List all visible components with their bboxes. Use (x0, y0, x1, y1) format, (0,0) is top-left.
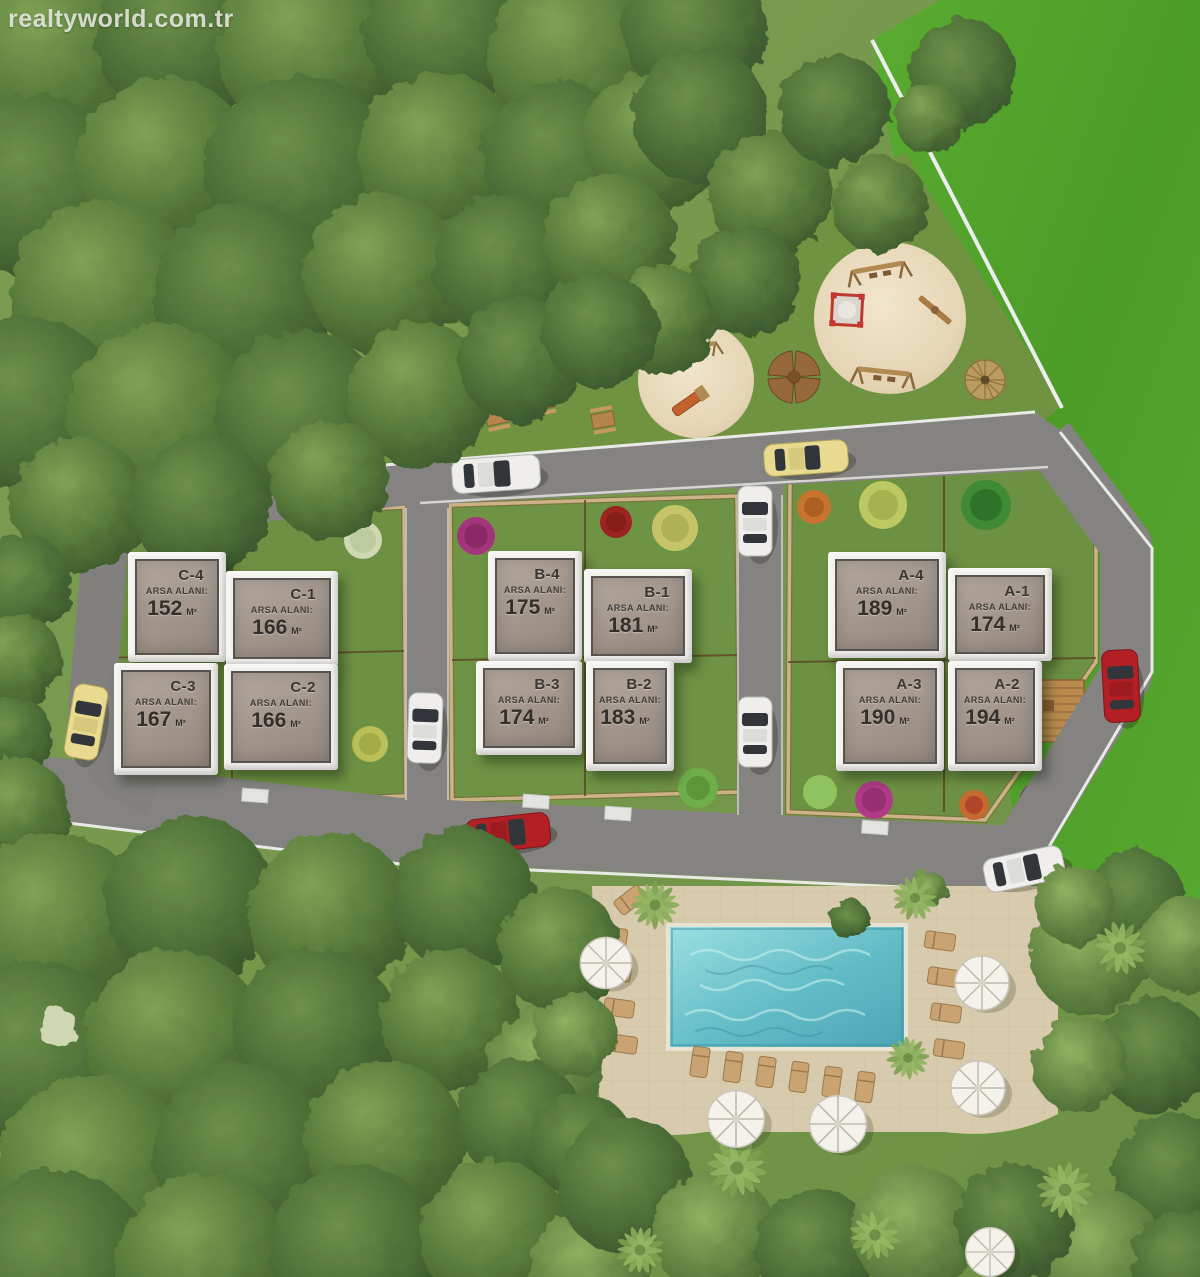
area-value: 166M² (233, 616, 324, 640)
villa-id-label: C-4 (137, 561, 217, 584)
tree (894, 82, 966, 154)
villa-a-3: A-3 ARSA ALANI: 190M² (836, 661, 944, 771)
villa-c-3: C-3 ARSA ALANI: 167M² (114, 663, 218, 775)
area-value: 190M² (843, 706, 930, 730)
area-caption: ARSA ALANI: (837, 586, 937, 596)
villa-id-label: A-2 (957, 670, 1033, 693)
area-caption: ARSA ALANI: (233, 698, 329, 708)
area-caption: ARSA ALANI: (957, 602, 1043, 612)
area-unit: M² (1004, 716, 1015, 726)
car-white (738, 486, 778, 564)
flowering-bush (38, 1008, 78, 1048)
villa-id-label: B-4 (497, 560, 573, 583)
villa-id-label: A-3 (845, 670, 935, 693)
villa-roof: B-2 ARSA ALANI: 183M² (593, 668, 667, 764)
sandbox (829, 292, 865, 328)
villa-a-2: A-2 ARSA ALANI: 194M² (948, 661, 1042, 771)
site-plan: C-4 ARSA ALANI: 152M² C-1 ARSA ALANI: 16… (0, 0, 1200, 1277)
area-value: 194M² (955, 706, 1028, 730)
area-value: 152M² (135, 597, 212, 621)
area-unit: M² (639, 716, 650, 726)
villa-b-2: B-2 ARSA ALANI: 183M² (586, 661, 674, 771)
villa-roof: C-3 ARSA ALANI: 167M² (121, 670, 211, 768)
villa-id-label: C-3 (123, 672, 209, 695)
area-caption: ARSA ALANI: (595, 695, 665, 705)
villa-c-4: C-4 ARSA ALANI: 152M² (128, 552, 226, 662)
villa-id-label: B-3 (485, 670, 573, 693)
villa-roof: A-3 ARSA ALANI: 190M² (843, 668, 937, 764)
area-value: 174M² (483, 706, 568, 730)
area-value: 175M² (495, 596, 568, 620)
villa-roof: C-1 ARSA ALANI: 166M² (233, 578, 331, 659)
villa-roof: C-2 ARSA ALANI: 166M² (231, 671, 331, 763)
area-unit: M² (175, 718, 186, 728)
area-unit: M² (291, 626, 302, 636)
watermark: realtyworld.com.tr (8, 5, 234, 34)
area-caption: ARSA ALANI: (957, 695, 1033, 705)
villa-b-3: B-3 ARSA ALANI: 174M² (476, 661, 582, 755)
car-white (738, 697, 778, 775)
villa-c-2: C-2 ARSA ALANI: 166M² (224, 664, 338, 770)
area-unit: M² (538, 716, 549, 726)
area-caption: ARSA ALANI: (123, 697, 209, 707)
villa-roof: A-4 ARSA ALANI: 189M² (835, 559, 939, 651)
area-caption: ARSA ALANI: (485, 695, 573, 705)
area-value: 183M² (593, 706, 660, 730)
villa-roof: B-4 ARSA ALANI: 175M² (495, 558, 575, 654)
villa-roof: B-3 ARSA ALANI: 174M² (483, 668, 575, 748)
villa-id-label: C-2 (233, 673, 329, 696)
area-unit: M² (186, 607, 197, 617)
area-unit: M² (1009, 623, 1020, 633)
area-caption: ARSA ALANI: (235, 605, 329, 615)
area-caption: ARSA ALANI: (497, 585, 573, 595)
villa-roof: A-2 ARSA ALANI: 194M² (955, 668, 1035, 764)
area-unit: M² (899, 716, 910, 726)
area-value: 167M² (121, 708, 204, 732)
villa-id-label: B-1 (593, 578, 683, 601)
villa-b-1: B-1 ARSA ALANI: 181M² (584, 569, 692, 663)
area-value: 166M² (231, 709, 324, 733)
area-caption: ARSA ALANI: (845, 695, 935, 705)
area-value: 181M² (591, 614, 678, 638)
area-unit: M² (290, 719, 301, 729)
villa-id-label: A-4 (837, 561, 937, 584)
area-unit: M² (544, 606, 555, 616)
villa-roof: A-1 ARSA ALANI: 174M² (955, 575, 1045, 654)
villa-roof: C-4 ARSA ALANI: 152M² (135, 559, 219, 655)
villa-c-1: C-1 ARSA ALANI: 166M² (226, 571, 338, 666)
area-value: 174M² (955, 613, 1038, 637)
area-caption: ARSA ALANI: (137, 586, 217, 596)
villa-id-label: A-1 (957, 577, 1043, 600)
villa-roof: B-1 ARSA ALANI: 181M² (591, 576, 685, 656)
area-unit: M² (896, 607, 907, 617)
area-caption: ARSA ALANI: (593, 603, 683, 613)
area-unit: M² (647, 624, 658, 634)
area-value: 189M² (835, 597, 932, 621)
villa-a-4: A-4 ARSA ALANI: 189M² (828, 552, 946, 658)
villa-id-label: B-2 (595, 670, 665, 693)
villa-b-4: B-4 ARSA ALANI: 175M² (488, 551, 582, 661)
villa-id-label: C-1 (235, 580, 329, 603)
villa-a-1: A-1 ARSA ALANI: 174M² (948, 568, 1052, 661)
